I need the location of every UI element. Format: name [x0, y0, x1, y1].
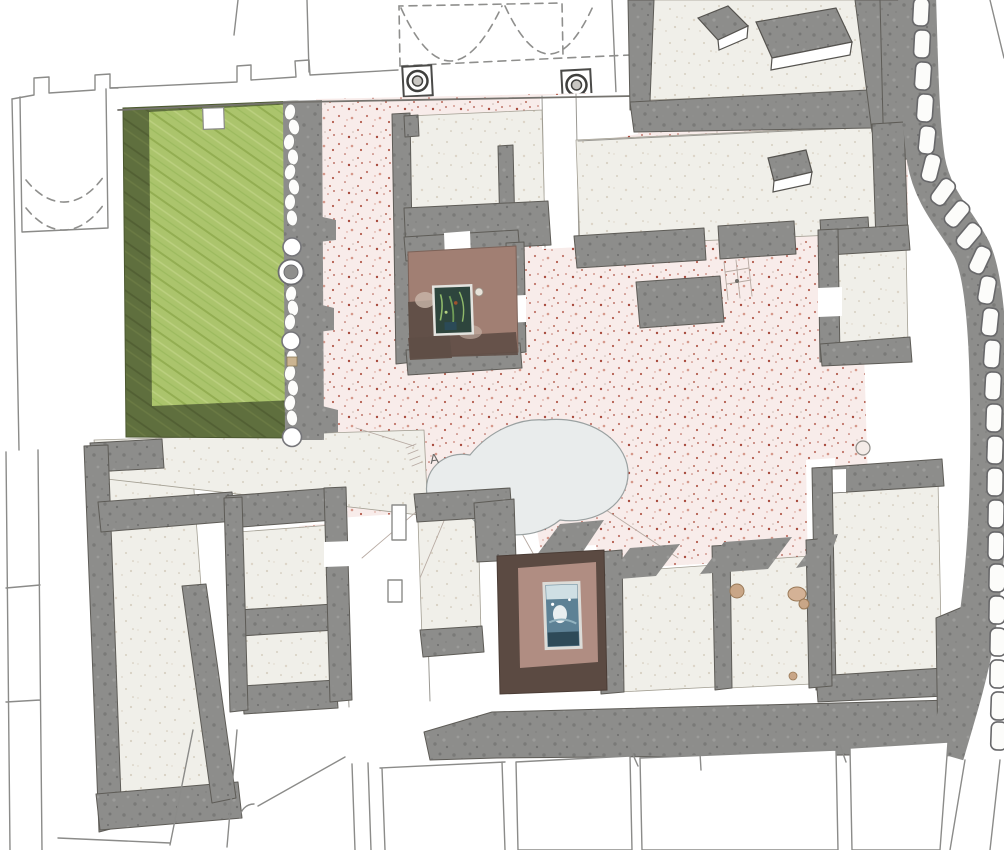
- floor-patch: [415, 292, 435, 308]
- small-find: [789, 672, 797, 680]
- room-floor: [834, 245, 908, 350]
- room-floor: [238, 525, 334, 618]
- garden-lawn: [149, 104, 295, 406]
- column-base-circle: [282, 332, 300, 350]
- upper-mosaic-room: [408, 246, 518, 360]
- door-pillar: [392, 505, 406, 540]
- well-ring: [856, 441, 870, 455]
- outlined-room: [640, 750, 838, 850]
- outlined-room: [516, 756, 632, 850]
- column-base-circle: [283, 428, 302, 447]
- excavation-plan: A: [0, 0, 1004, 850]
- threshold-block: [287, 357, 297, 366]
- room-floor: [726, 556, 812, 688]
- garden-planting-pit: [203, 108, 225, 130]
- door-pillar: [388, 580, 402, 602]
- column-base-circle: [283, 238, 301, 256]
- small-base: [475, 288, 483, 296]
- room-floor: [616, 565, 716, 692]
- garden: [123, 101, 300, 438]
- lower-mosaic-room: [497, 550, 607, 694]
- room-floor: [830, 480, 942, 686]
- jar-find: [730, 584, 744, 598]
- outlined-room: [850, 742, 948, 850]
- jar-find: [799, 599, 809, 609]
- lower-mosaic-panel: [544, 582, 581, 648]
- site-plan-canvas: A: [0, 0, 1004, 850]
- column-base: [402, 65, 433, 96]
- room-floor: [418, 516, 481, 638]
- upper-mosaic-panel: [433, 285, 473, 334]
- column-base-core: [284, 265, 298, 279]
